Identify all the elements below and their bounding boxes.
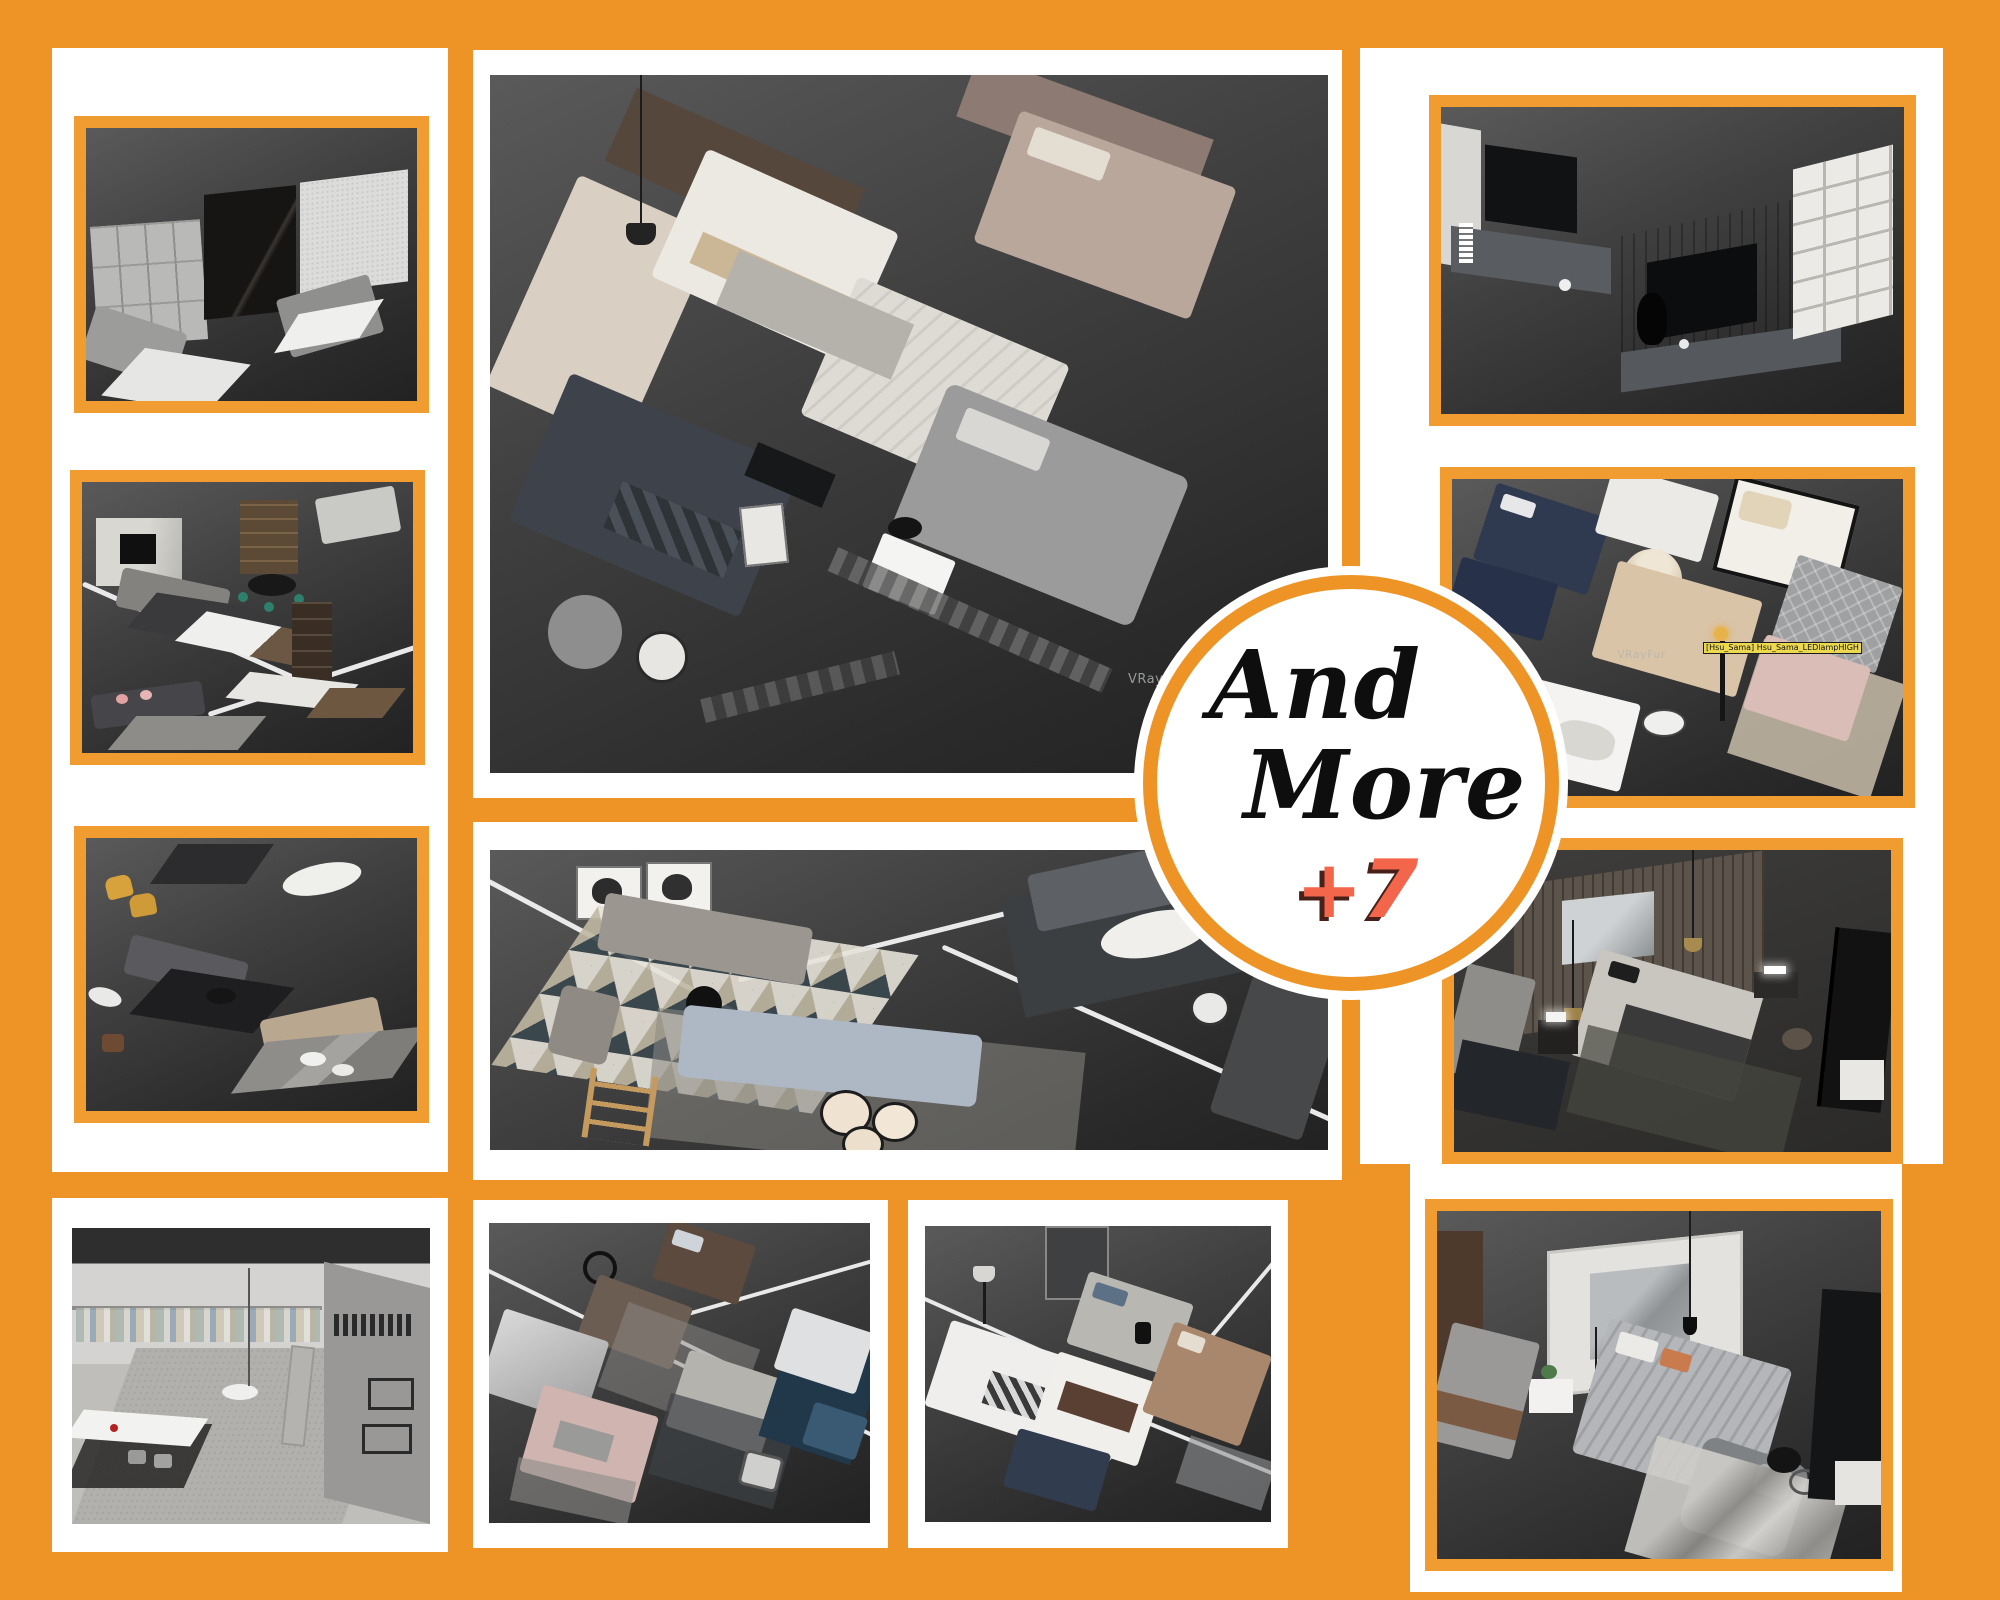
white-dining-table-shape [280, 856, 364, 902]
black-clothes-shape [334, 1314, 414, 1336]
photo-tv-wall-units [1429, 95, 1916, 426]
dark-bed-shape [652, 1223, 757, 1305]
cabinet-shape [240, 500, 298, 574]
round-side-table-shape [1642, 709, 1686, 737]
pink-pillow-shape [116, 694, 128, 704]
side-table-shape [86, 984, 124, 1011]
photo-gray-bedroom-scene [1425, 1199, 1893, 1571]
bookshelf-shape [1793, 145, 1893, 340]
tv-shape [1485, 145, 1577, 234]
pillow-shape [955, 407, 1051, 472]
ball-lamp-shape [1679, 339, 1689, 349]
cream-bed-shape [1591, 560, 1763, 697]
mustard-armchair-shape [128, 892, 157, 918]
glow-lamp-shape [1546, 1012, 1566, 1022]
pendant-bulb-shape [1683, 1317, 1697, 1335]
pendant-cord-shape [1692, 850, 1694, 940]
brass-pendant-shape [1684, 938, 1702, 952]
photo-living-room-wall-finishes [74, 116, 429, 413]
red-rose-shape [110, 1424, 118, 1432]
rug-shape [108, 716, 267, 750]
chair-shape [154, 1454, 172, 1468]
glow-lamp-shape [1764, 966, 1786, 974]
badge-counter: +7 [1296, 850, 1419, 930]
dining-table-shape [248, 574, 296, 596]
black-side-table-shape [1767, 1447, 1801, 1473]
horse-silhouette-shape [662, 874, 692, 900]
mustard-armchair-shape [104, 873, 135, 901]
and-more-badge: And More +7 [1143, 575, 1559, 991]
woven-wall-shape [300, 169, 408, 294]
pillow-shape [1615, 1331, 1660, 1363]
round-table-shape [332, 1064, 354, 1076]
checkered-throw-shape [982, 1371, 1046, 1421]
photo-sofa-dining-collection [74, 826, 429, 1123]
marble-side-table-shape [636, 631, 688, 683]
orange-pillow-shape [1659, 1348, 1693, 1374]
pendant-cord-shape [1572, 920, 1574, 1010]
plaid-throw-shape [603, 481, 742, 578]
tv-shape [120, 534, 156, 564]
marble-nightstand-shape [1835, 1461, 1881, 1505]
pillow-shape [671, 1229, 704, 1253]
metal-rack-shape [368, 1378, 414, 1410]
nightstand-shape [1538, 1020, 1578, 1054]
teal-chair-shape [238, 592, 248, 602]
fur-throw-shape [1551, 716, 1618, 765]
dark-dining-table-shape [150, 844, 274, 884]
dark-pillow-shape [1607, 960, 1640, 984]
pillow-shape [1499, 493, 1536, 519]
gray-throw-shape [553, 1420, 615, 1462]
round-table-shape [222, 1384, 258, 1400]
leaning-art-shape [739, 503, 789, 567]
lamp-shade-shape [973, 1266, 995, 1282]
coffee-table-shape [206, 988, 236, 1004]
rug-shape [1175, 1435, 1271, 1510]
vray-watermark: VRayFur [1617, 648, 1666, 661]
badge-line-and: And [1209, 636, 1421, 736]
books-shape [1459, 223, 1473, 263]
photo-bed-collection-two [925, 1226, 1271, 1522]
checkered-runner-shape [700, 651, 900, 723]
armchair-shape [548, 595, 622, 669]
tufted-wing-shape [1737, 490, 1793, 531]
pillow-shape [1092, 1282, 1129, 1308]
chair-shape [128, 1450, 146, 1464]
pendant-cord-shape [1689, 1211, 1691, 1319]
hanging-clothes-shape [76, 1308, 320, 1342]
leather-pouf-shape [102, 1034, 124, 1052]
tv-cabinet-shape [1451, 226, 1611, 294]
sofa-shape [315, 485, 402, 544]
marble-rug-shape [231, 1026, 427, 1093]
floating-nightstand-shape [1754, 972, 1798, 998]
pendant-cord-shape [248, 1268, 250, 1386]
plant-shape [1541, 1365, 1557, 1379]
wood-stool-shape [1782, 1028, 1812, 1050]
poster-canvas: VRayFu [0, 0, 2000, 1600]
pendant-lamp-shape [626, 223, 656, 245]
black-lamp-shape [888, 517, 922, 539]
pink-pillow-shape [140, 690, 152, 700]
glowing-lamp-shape [1714, 627, 1728, 641]
brown-base-shape [1429, 1390, 1524, 1441]
photo-walk-in-closet [72, 1228, 430, 1524]
pendant-cord-shape [640, 75, 642, 225]
round-table-shape [300, 1052, 326, 1066]
metal-rack-shape [362, 1424, 412, 1454]
marble-nightstand-shape [1840, 1060, 1884, 1100]
teal-chair-shape [264, 602, 274, 612]
photo-bed-collection-one [489, 1223, 870, 1523]
pillow-shape [1176, 1330, 1206, 1354]
photo-living-dining-collection [70, 470, 425, 765]
object-tooltip: [Hsu_Sama] Hsu_Sama_LEDlampHIGH [1703, 642, 1862, 654]
white-nightstand-shape [1529, 1379, 1573, 1413]
ball-lamp-shape [1559, 279, 1571, 291]
dark-sofa-shape [1209, 969, 1328, 1141]
brown-blanket-shape [1057, 1381, 1139, 1433]
round-side-table-shape [1190, 990, 1230, 1026]
black-lamp-shape [1135, 1322, 1151, 1344]
badge-line-more: More [1243, 736, 1526, 836]
wood-ladder-shape [581, 1068, 658, 1147]
black-vase-shape [1637, 293, 1667, 345]
floor-lamp-pole-shape [983, 1278, 986, 1324]
